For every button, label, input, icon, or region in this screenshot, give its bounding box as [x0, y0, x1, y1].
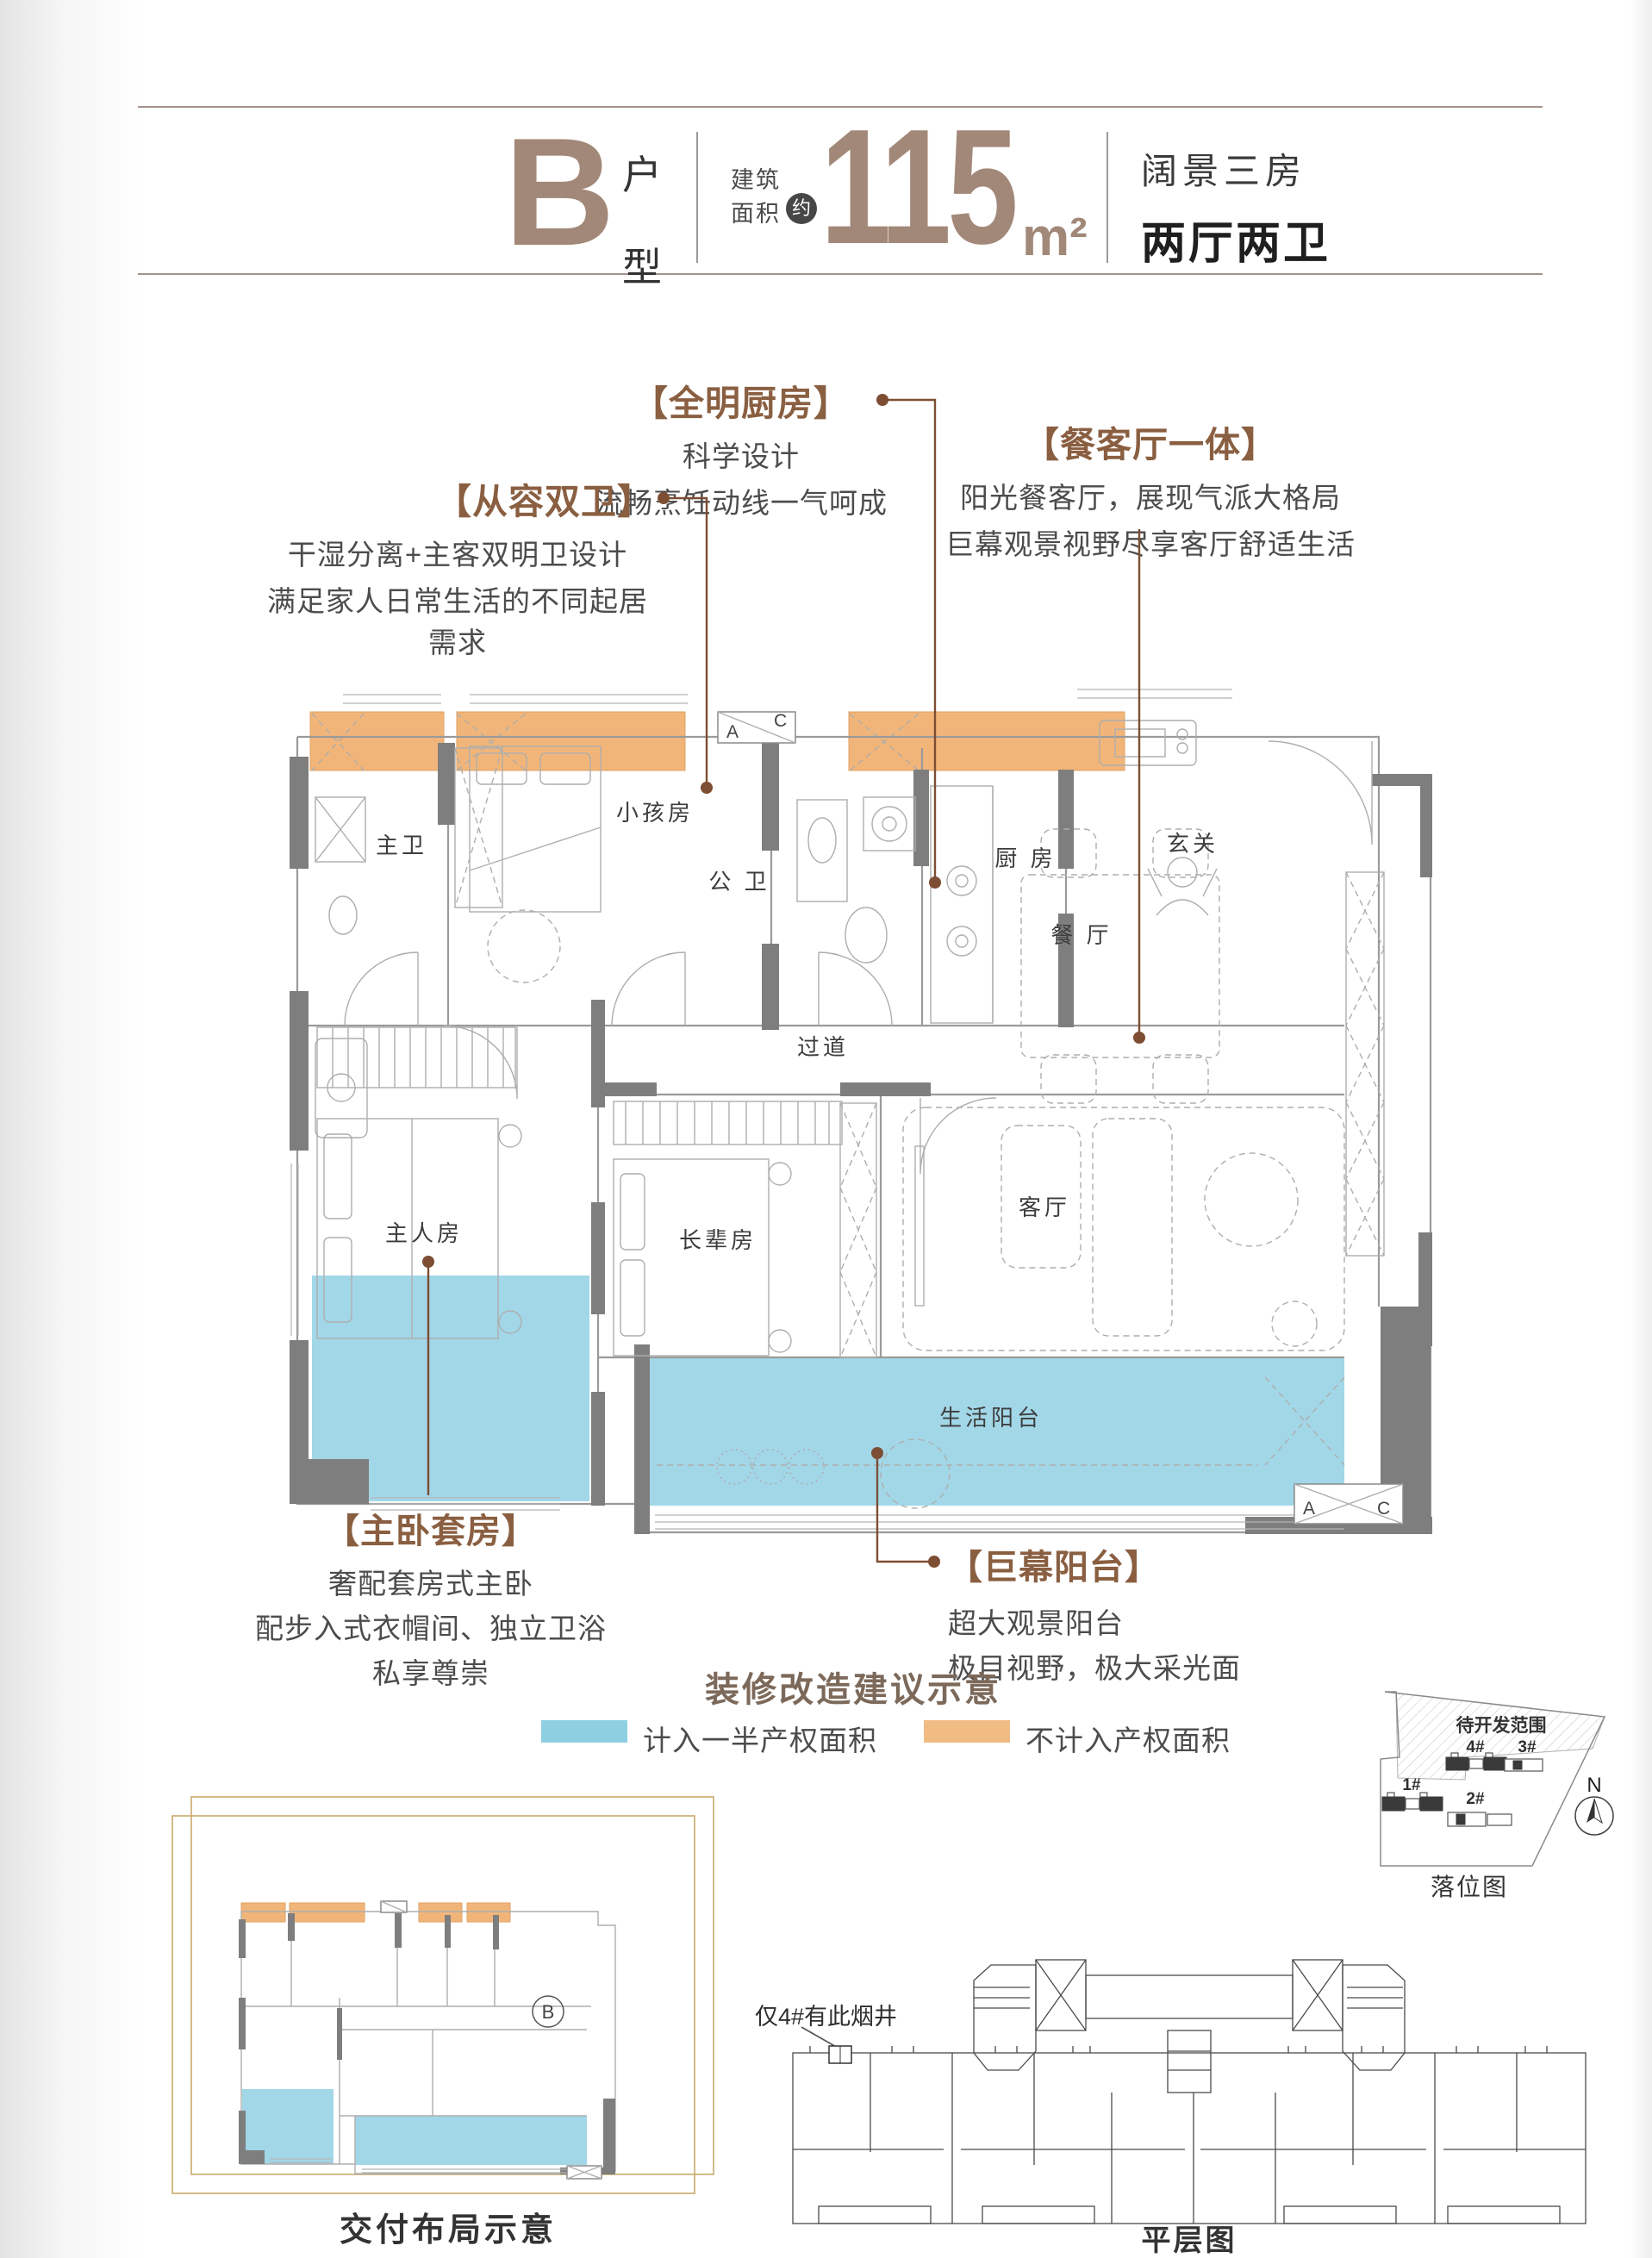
ac-letter-c: C: [774, 711, 787, 731]
site-building-2: 2#: [1448, 1790, 1512, 1826]
legend-title: 装修改造建议示意: [595, 1662, 1112, 1712]
legend-label-half-property: 计入一半产权面积: [643, 1718, 877, 1759]
annotation-balcony-title: 【巨幕阳台】: [948, 1539, 1362, 1589]
site-area-label: 待开发范围: [1456, 1715, 1547, 1736]
annotation-master-line1: 奢配套房式主卧: [220, 1563, 642, 1605]
approx-badge: 约: [786, 193, 817, 224]
compass-north-label: N: [1587, 1774, 1601, 1797]
svg-text:2#: 2#: [1466, 1790, 1485, 1808]
annotation-baths-title: 【从容双卫】: [259, 472, 657, 524]
annotation-dining-line2: 巨幕观景视野尽享客厅舒适生活: [926, 524, 1375, 565]
mini-plan-caption: 交付布局示意: [284, 2203, 612, 2250]
annotation-baths-line2: 满足家人日常生活的不同起居需求: [259, 581, 657, 664]
room-label-kitchen: 厨 房: [994, 845, 1056, 871]
annotation-baths: 【从容双卫】 干湿分离+主客双明卫设计 满足家人日常生活的不同起居需求: [259, 472, 657, 664]
mini-plan: B: [155, 1788, 732, 2219]
annotation-master-line3: 私享尊崇: [220, 1653, 642, 1694]
annotation-kitchen-title: 【全明厨房】: [517, 374, 965, 426]
ac-letter-c2: C: [1377, 1499, 1390, 1519]
room-label-kids-room: 小孩房: [616, 800, 694, 826]
annotation-baths-line1: 干湿分离+主客双明卫设计: [259, 534, 657, 576]
unit-suffix: 户型: [622, 129, 667, 314]
chimney-note: 仅4#有此烟井: [755, 1998, 897, 2031]
ac-box-top: A C: [718, 711, 795, 743]
desc-line2: 两厅两卫: [1141, 207, 1331, 271]
compass: N: [1575, 1774, 1613, 1835]
mini-plan-zones: [241, 1903, 587, 2165]
page-edge-gradient-right: [1630, 0, 1652, 2258]
chimney-shaft: [829, 2046, 851, 2063]
ac-letter-a2: A: [1303, 1499, 1315, 1519]
desc-line1: 阔景三房: [1141, 142, 1331, 195]
annotation-dining-title: 【餐客厅一体】: [926, 415, 1375, 467]
area-value: 115: [820, 97, 1014, 278]
site-building-1: 1#: [1382, 1776, 1443, 1811]
building-cores: [974, 1960, 1405, 2093]
svg-text:3#: 3#: [1518, 1738, 1537, 1756]
building-floor-caption: 平层图: [1103, 2217, 1275, 2258]
svg-text:4#: 4#: [1466, 1738, 1485, 1756]
brochure-page: B 户型 建筑面积 约 115 m² 阔景三房 两厅两卫 【全明厨房】 科学设计…: [0, 0, 1652, 2258]
annotation-master-line2: 配步入式衣帽间、独立卫浴: [220, 1608, 642, 1650]
header-divider-2: [1107, 132, 1108, 263]
blue-zones: [312, 1276, 1344, 1506]
svg-text:1#: 1#: [1402, 1776, 1421, 1794]
building-floor-layout: [728, 1949, 1650, 2238]
legend-label-no-property: 不计入产权面积: [1025, 1718, 1231, 1759]
ac-box-bottom: A C: [1294, 1484, 1403, 1524]
ac-letter-a: A: [726, 722, 739, 742]
legend-swatch-orange: [924, 1720, 1010, 1743]
room-label-master-room: 主人房: [385, 1220, 463, 1246]
unit-description: 阔景三房 两厅两卫: [1141, 142, 1331, 271]
room-label-hallway: 过道: [797, 1034, 849, 1060]
doors: [345, 741, 1372, 1174]
area-unit: m²: [1022, 207, 1088, 268]
main-floor-plan: A C A C 主卫 小孩房 公 卫 厨 房 玄关 餐 厅 过道 主人房 长辈房…: [284, 664, 1448, 1543]
room-label-foyer: 玄关: [1167, 831, 1219, 857]
header-divider-1: [696, 132, 698, 263]
annotation-kitchen-line1: 科学设计: [517, 436, 965, 477]
annotation-dining-line1: 阳光餐客厅，展现气派大格局: [926, 477, 1375, 519]
area-label: 建筑面积: [731, 164, 784, 231]
room-label-public-bath: 公 卫: [708, 869, 770, 895]
unit-letter: B: [504, 110, 615, 274]
closets: [317, 748, 1384, 1357]
building-slab: [793, 2046, 1586, 2224]
room-label-dining: 餐 厅: [1050, 922, 1112, 948]
mini-plan-unit-label: B: [542, 2001, 555, 2023]
site-plan: 待开发范围 4# 3# 1# 2# N: [1331, 1668, 1652, 1892]
room-label-living: 客厅: [1019, 1194, 1070, 1220]
annotation-dining: 【餐客厅一体】 阳光餐客厅，展现气派大格局 巨幕观景视野尽享客厅舒适生活: [926, 415, 1375, 565]
annotation-balcony-line1: 超大观景阳台: [948, 1603, 1362, 1644]
room-label-elder-room: 长辈房: [679, 1227, 757, 1253]
room-label-master-bath: 主卫: [376, 833, 427, 858]
page-edge-gradient-left: [0, 0, 146, 2258]
site-plan-caption: 落位图: [1392, 1868, 1547, 1903]
room-label-life-balcony: 生活阳台: [939, 1405, 1043, 1431]
legend-swatch-blue: [541, 1720, 627, 1743]
